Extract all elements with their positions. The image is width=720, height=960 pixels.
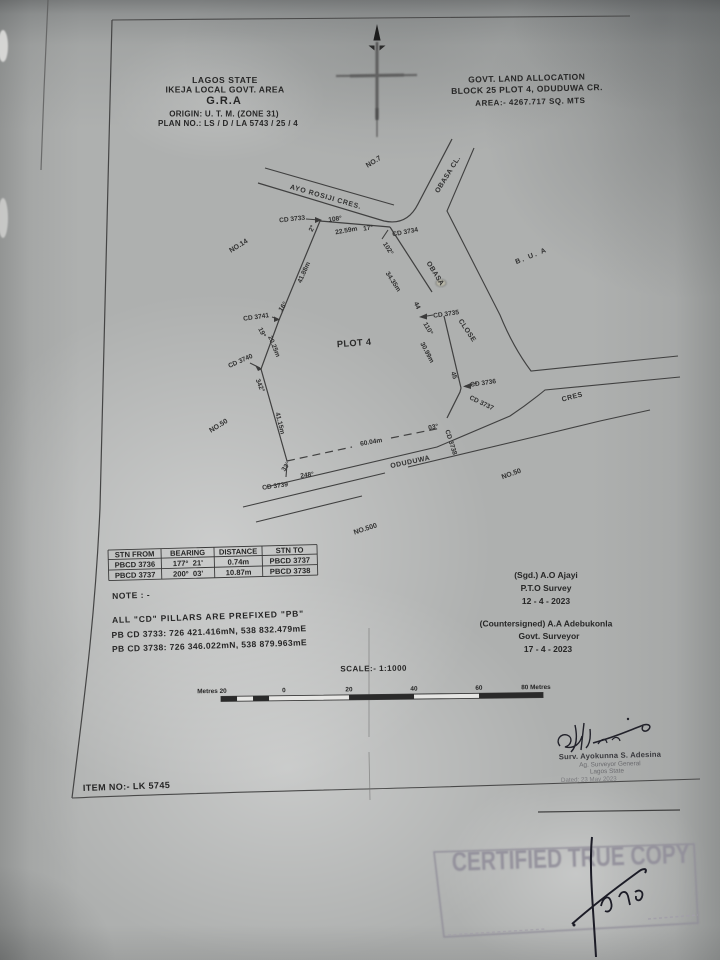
svg-text:B. U. A: B. U. A: [515, 247, 549, 266]
svg-text:PB CD 3738: 726 346.022mN, 538: PB CD 3738: 726 346.022mN, 538 879.963mE: [112, 637, 307, 654]
svg-text:CD 3740: CD 3740: [227, 353, 254, 370]
svg-text:NO.50: NO.50: [208, 418, 229, 435]
svg-text:STN TO: STN TO: [276, 545, 304, 555]
svg-text:CD 3741: CD 3741: [243, 312, 270, 323]
svg-text:248°: 248°: [300, 470, 315, 480]
svg-text:34.35m: 34.35m: [384, 271, 402, 294]
svg-text:AYO ROSIJI CRES.: AYO ROSIJI CRES.: [289, 184, 362, 211]
svg-text:41.15m: 41.15m: [273, 412, 285, 436]
svg-text:PLAN NO.: LS / D / LA 5743 / 2: PLAN NO.: LS / D / LA 5743 / 25 / 4: [158, 119, 298, 128]
svg-text:NO.500: NO.500: [353, 522, 378, 536]
svg-text:SCALE:- 1:1000: SCALE:- 1:1000: [340, 664, 407, 674]
svg-text:10.87m: 10.87m: [226, 568, 252, 578]
svg-text:NO.14: NO.14: [228, 238, 249, 255]
svg-text:Govt. Surveyor: Govt. Surveyor: [519, 631, 581, 641]
svg-text:PLOT 4: PLOT 4: [337, 337, 373, 349]
svg-text:BEARING: BEARING: [170, 548, 205, 558]
svg-text:60: 60: [475, 685, 483, 692]
svg-text:CRES: CRES: [561, 391, 584, 403]
svg-text:CD 3739: CD 3739: [262, 481, 289, 492]
svg-text:DISTANCE: DISTANCE: [219, 547, 257, 557]
svg-text:40: 40: [410, 686, 418, 693]
svg-text:CD 3733: CD 3733: [279, 215, 306, 225]
svg-text:NO.7: NO.7: [365, 155, 383, 170]
svg-text:0.74m: 0.74m: [227, 557, 249, 567]
svg-text:G.R.A: G.R.A: [206, 95, 242, 107]
svg-text:22.59m: 22.59m: [335, 226, 358, 237]
svg-text:PBCD 3738: PBCD 3738: [270, 566, 311, 576]
svg-text:PBCD 3737: PBCD 3737: [269, 556, 310, 566]
svg-text:PBCD 3736: PBCD 3736: [115, 560, 156, 570]
svg-text:CD 3734: CD 3734: [392, 226, 419, 238]
svg-text:16°: 16°: [277, 300, 289, 313]
svg-text:30.99m: 30.99m: [418, 341, 435, 364]
svg-text:(Countersigned) A.A Adebukonla: (Countersigned) A.A Adebukonla: [480, 619, 613, 629]
svg-text:80 Metres: 80 Metres: [521, 684, 551, 691]
svg-text:ORIGIN: U. T. M. (ZONE 31): ORIGIN: U. T. M. (ZONE 31): [169, 110, 279, 119]
svg-text:102°: 102°: [381, 241, 395, 257]
svg-text:STN FROM: STN FROM: [115, 549, 155, 559]
svg-text:CD 3735: CD 3735: [433, 309, 460, 320]
svg-text:CERTIFIED TRUE COPY: CERTIFIED TRUE COPY: [451, 839, 690, 877]
svg-text:CD 3737: CD 3737: [468, 394, 495, 412]
svg-text:60.04m: 60.04m: [360, 437, 383, 448]
svg-text:12 - 4 - 2023: 12 - 4 - 2023: [522, 596, 570, 606]
svg-text:LAGOS STATE: LAGOS STATE: [192, 75, 258, 85]
svg-text:20.25m: 20.25m: [266, 335, 281, 358]
svg-text:OBASA CL.: OBASA CL.: [434, 155, 462, 194]
svg-text:CD 3738: CD 3738: [443, 429, 458, 456]
svg-text:177° 21': 177° 21': [173, 558, 204, 568]
svg-text:44: 44: [412, 301, 422, 311]
svg-text:Lagos State: Lagos State: [590, 768, 625, 776]
svg-text:200° 03': 200° 03': [173, 569, 204, 579]
svg-text:03°: 03°: [428, 422, 440, 432]
svg-text:17°: 17°: [363, 223, 374, 233]
svg-text:CLOSE: CLOSE: [457, 318, 477, 344]
svg-text:0: 0: [282, 687, 286, 694]
svg-text:(Sgd.) A.O Ajayi: (Sgd.) A.O Ajayi: [514, 570, 578, 580]
svg-text:33°: 33°: [280, 460, 292, 473]
svg-text:NO.50: NO.50: [501, 468, 523, 482]
svg-text:CD 3736: CD 3736: [470, 378, 497, 389]
svg-text:OBASA: OBASA: [425, 260, 445, 287]
svg-text:IKEJA LOCAL GOVT. AREA: IKEJA LOCAL GOVT. AREA: [166, 85, 285, 95]
svg-text:ALL "CD" PILLARS ARE PREFIXED: ALL "CD" PILLARS ARE PREFIXED "PB": [112, 608, 304, 625]
svg-text:PBCD 3737: PBCD 3737: [115, 570, 156, 580]
svg-text:NOTE : -: NOTE : -: [112, 590, 150, 601]
svg-text:17 - 4 - 2023: 17 - 4 - 2023: [524, 644, 572, 654]
svg-text:Dated: 23 May 2023: Dated: 23 May 2023: [561, 776, 617, 784]
svg-text:Surv. Ayokunna S. Adesina: Surv. Ayokunna S. Adesina: [559, 750, 662, 762]
svg-text:AREA:- 4267.717 SQ. MTS: AREA:- 4267.717 SQ. MTS: [475, 96, 586, 108]
svg-text:Metres 20: Metres 20: [197, 688, 227, 695]
svg-text:45: 45: [449, 371, 458, 381]
svg-text:20: 20: [345, 686, 353, 693]
svg-text:P.T.O Survey: P.T.O Survey: [521, 583, 572, 593]
svg-text:ITEM NO:- LK 5745: ITEM NO:- LK 5745: [83, 780, 171, 793]
svg-text:110°: 110°: [421, 321, 435, 337]
